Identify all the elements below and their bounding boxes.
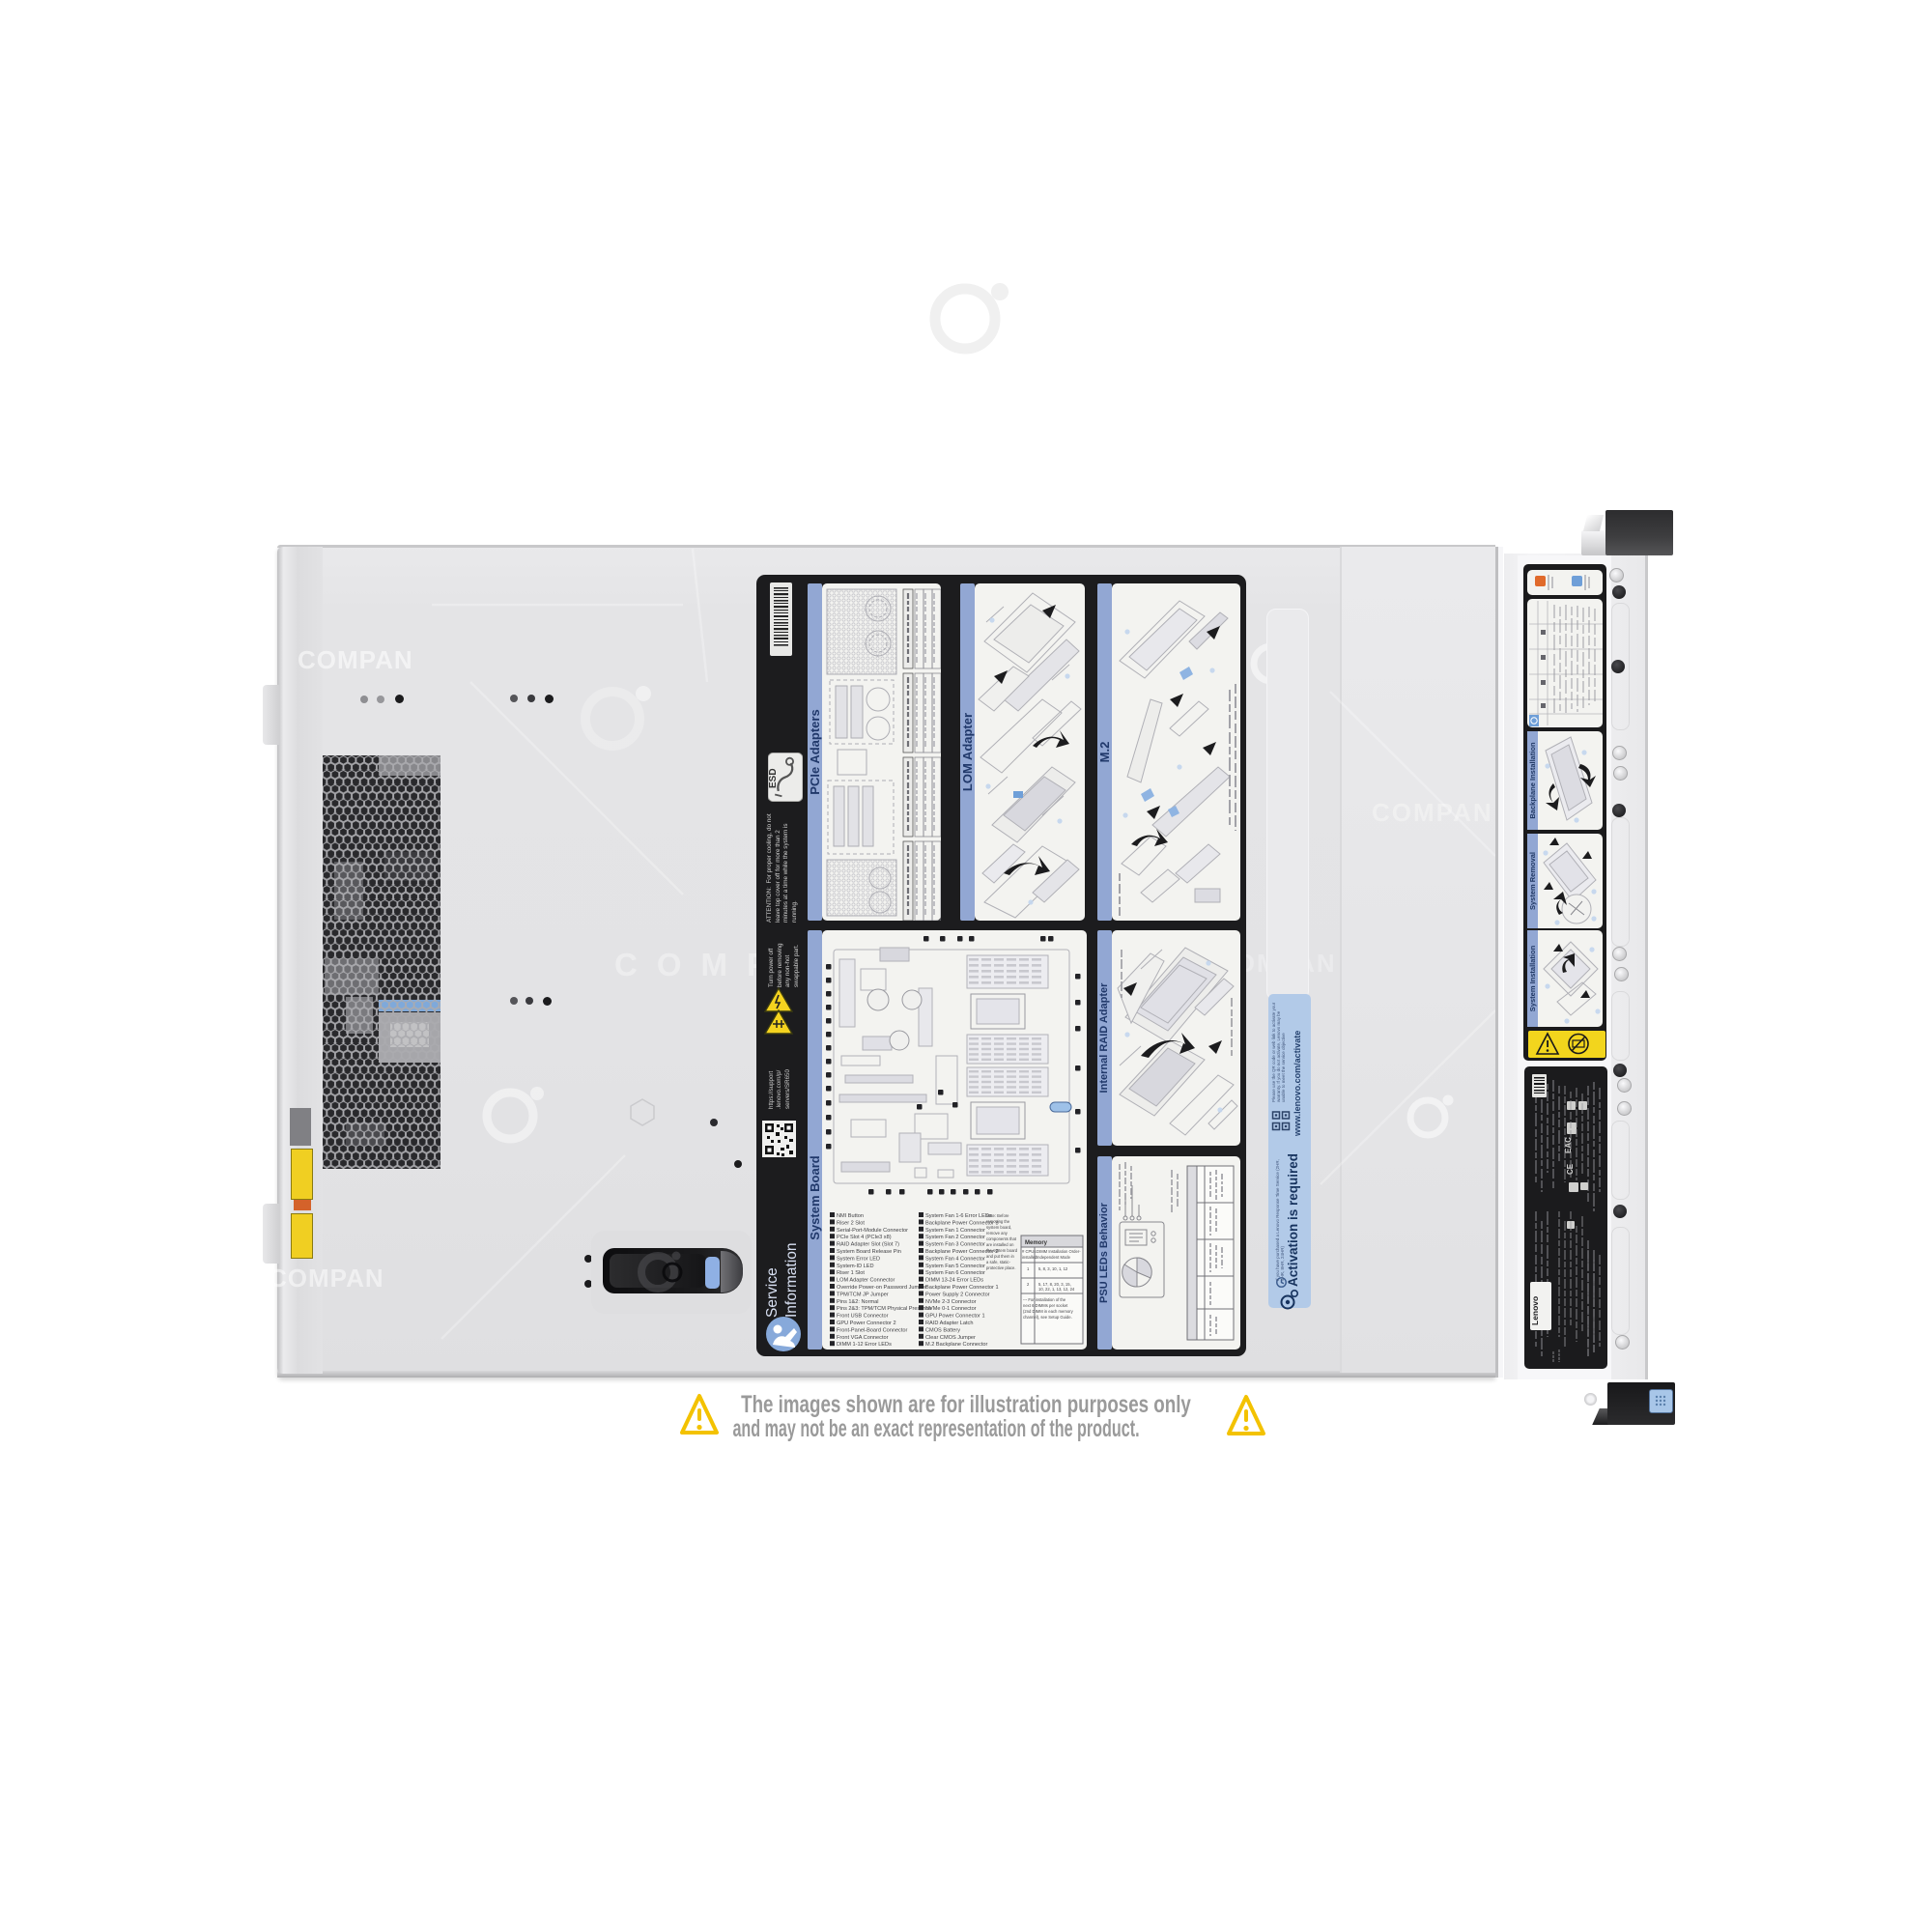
svg-text:10, 22, 1, 13, 12, 24: 10, 22, 1, 13, 12, 24 (1038, 1287, 1075, 1292)
svg-text:Pins 1&2: Normal: Pins 1&2: Normal (837, 1299, 879, 1305)
svg-text:System Board Release Pin: System Board Release Pin (837, 1249, 901, 1255)
svg-text:Serial-Port-Module Connector: Serial-Port-Module Connector (837, 1228, 908, 1234)
svg-text:Riser 1 Slot: Riser 1 Slot (837, 1270, 865, 1276)
svg-text:a safe, static-: a safe, static- (986, 1260, 1011, 1264)
svg-text:CMOS Battery: CMOS Battery (925, 1327, 960, 1333)
svg-text:RAID Adapter Slot (Slot 7): RAID Adapter Slot (Slot 7) (837, 1242, 899, 1248)
svg-text:and put them in: and put them in (986, 1254, 1015, 1259)
svg-text:RAID Adapter Latch: RAID Adapter Latch (925, 1321, 973, 1326)
svg-text:Pins 2&3: TPM/TCM Physical Pre: Pins 2&3: TPM/TCM Physical Presence (837, 1306, 931, 1312)
svg-text:GPU Power Connector 1: GPU Power Connector 1 (925, 1314, 985, 1320)
svg-text:System Fan 1-6 Error LEDs: System Fan 1-6 Error LEDs (925, 1213, 992, 1219)
svg-text:--- For installation of the: --- For installation of the (1023, 1297, 1066, 1302)
svg-text:PCIe Slot 4 (PCIe3 x8): PCIe Slot 4 (PCIe3 x8) (837, 1235, 892, 1240)
svg-text:Front VGA Connector: Front VGA Connector (837, 1335, 889, 1341)
svg-text:System-ID LED: System-ID LED (837, 1264, 874, 1269)
svg-text:DIMM 1-12 Error LEDs: DIMM 1-12 Error LEDs (837, 1342, 892, 1348)
svg-text:NMI Button: NMI Button (837, 1213, 864, 1219)
svg-text:Backplane Power Connector 1: Backplane Power Connector 1 (925, 1285, 999, 1291)
svg-text:M.2 Backplane Connector: M.2 Backplane Connector (925, 1342, 988, 1348)
svg-text:System Fan 5 Connector: System Fan 5 Connector (925, 1264, 985, 1269)
svg-text:system board,: system board, (986, 1225, 1011, 1230)
svg-text:System Error LED: System Error LED (837, 1256, 880, 1262)
svg-text:Front-Panel-Board Connector: Front-Panel-Board Connector (837, 1327, 908, 1333)
svg-text:components that: components that (986, 1236, 1017, 1241)
svg-text:removing the: removing the (986, 1219, 1010, 1224)
svg-text:Riser 2 Slot: Riser 2 Slot (837, 1220, 865, 1226)
svg-text:Power Supply 2 Connector: Power Supply 2 Connector (925, 1292, 990, 1297)
svg-text:are installed on: are installed on (986, 1242, 1014, 1247)
svg-text:NVMe 2-3 Connector: NVMe 2-3 Connector (925, 1299, 977, 1305)
svg-text:TPM/TCM JP Jumper: TPM/TCM JP Jumper (837, 1292, 889, 1297)
svg-text:channel), see Setup Guide.: channel), see Setup Guide. (1023, 1315, 1072, 1320)
svg-text:next 6 DIMMs per socket: next 6 DIMMs per socket (1023, 1303, 1068, 1308)
svg-text:NVMe 0-1 Connector: NVMe 0-1 Connector (925, 1306, 977, 1312)
svg-text:remove any: remove any (986, 1231, 1009, 1236)
svg-text:Independent Mode: Independent Mode (1037, 1255, 1071, 1260)
svg-text:5, 8, 3, 10, 1, 12: 5, 8, 3, 10, 1, 12 (1038, 1266, 1068, 1271)
svg-text:Clear CMOS Jumper: Clear CMOS Jumper (925, 1335, 976, 1341)
svg-text:System Fan 4 Connector: System Fan 4 Connector (925, 1256, 985, 1262)
svg-text:installed: installed (1022, 1255, 1037, 1260)
svg-text:GPU Power Connector 2: GPU Power Connector 2 (837, 1321, 896, 1326)
svg-text:(2nd DIMM in each memory: (2nd DIMM in each memory (1023, 1309, 1074, 1314)
svg-text:Override Power-on Password Jum: Override Power-on Password Jumper (837, 1285, 926, 1291)
svg-text:System Fan 2 Connector: System Fan 2 Connector (925, 1235, 985, 1240)
svg-text:Lenovo: Lenovo (1530, 1296, 1540, 1325)
svg-text:System Fan 6 Connector: System Fan 6 Connector (925, 1270, 985, 1276)
svg-text:DIMM Installation Order-: DIMM Installation Order- (1037, 1249, 1081, 1254)
svg-text:System Fan 3 Connector: System Fan 3 Connector (925, 1242, 985, 1248)
svg-text:Note: Before: Note: Before (986, 1213, 1009, 1218)
svg-text:protective place.: protective place. (986, 1265, 1016, 1270)
svg-text:# CPUs: # CPUs (1022, 1249, 1036, 1254)
svg-text:DIMM 13-24 Error LEDs: DIMM 13-24 Error LEDs (925, 1278, 983, 1284)
svg-text:Front USB Connector: Front USB Connector (837, 1314, 889, 1320)
svg-text:System Fan 1 Connector: System Fan 1 Connector (925, 1228, 985, 1234)
svg-text:LOM Adapter Connector: LOM Adapter Connector (837, 1278, 895, 1284)
svg-text:CE: CE (1566, 1163, 1575, 1175)
svg-text:the system board: the system board (986, 1248, 1018, 1253)
svg-text:Memory: Memory (1025, 1240, 1048, 1246)
